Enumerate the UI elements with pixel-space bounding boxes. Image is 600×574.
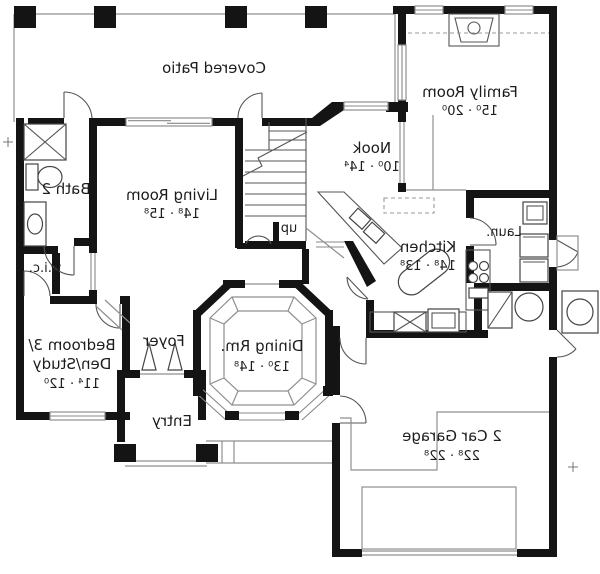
label-laundry: Laun.	[486, 225, 522, 240]
dim-nook: 10⁰ · 14⁴	[344, 160, 400, 175]
floor-plan-drawing: Covered Patio Family Room 15⁰ · 20⁰ Nook…	[0, 0, 600, 574]
utility-sink	[523, 202, 547, 224]
dim-kitchen: 14⁸ · 13⁸	[400, 259, 456, 274]
range-cooktop	[469, 262, 489, 299]
floor-plan: Covered Patio Family Room 15⁰ · 20⁰ Nook…	[0, 0, 600, 574]
label-bath-2: Bath 2	[41, 180, 90, 198]
dim-bedroom-3: 11⁴ · 12⁰	[44, 377, 100, 392]
fireplace	[449, 14, 499, 46]
dim-garage: 22⁸ · 22⁸	[424, 449, 480, 464]
family-room-extras	[406, 14, 549, 190]
label-bedroom-3-line1: Bedroom 3/	[27, 336, 115, 354]
garage-side-door	[557, 330, 576, 357]
refrigerator	[428, 309, 459, 332]
entry-porch	[114, 441, 332, 466]
label-garage: 2 Car Garage	[402, 427, 502, 445]
ac-pad	[562, 291, 598, 333]
furnace	[488, 292, 512, 328]
stairhall-patio-door	[238, 93, 262, 118]
label-living-room: Living Room	[126, 186, 218, 204]
label-wic: w.i.c.	[29, 261, 62, 276]
water-heater	[515, 293, 543, 321]
dim-family-room: 15⁰ · 20⁰	[442, 104, 498, 119]
label-kitchen: Kitchen	[400, 238, 456, 256]
label-stairs-up: up	[281, 221, 298, 236]
dim-living-room: 14⁸ · 15⁸	[144, 207, 200, 222]
shower	[24, 124, 66, 160]
label-entry: Entry	[152, 412, 192, 430]
washer-dryer	[520, 234, 548, 282]
sliding-door	[126, 118, 212, 126]
stairs	[240, 118, 344, 258]
cased-opening-hall	[89, 253, 97, 290]
patio-pillars	[14, 6, 327, 28]
pantry	[394, 312, 426, 332]
label-nook: Nook	[353, 139, 392, 157]
garage-hall-door	[340, 338, 366, 364]
label-dining-room: Dining Rm.	[221, 337, 304, 355]
label-foyer: Foyer	[142, 332, 184, 350]
label-family-room: Family Room	[422, 83, 518, 101]
vanity-sink	[24, 202, 46, 246]
doors	[24, 92, 578, 423]
laundry-fixtures	[520, 202, 548, 282]
label-bedroom-3-line2: Den/Study	[33, 355, 112, 373]
entry-pillars	[114, 444, 218, 462]
counter-south	[370, 309, 466, 332]
dim-dining-room: 13⁰ · 14⁸	[234, 360, 290, 375]
garage-door	[362, 487, 517, 555]
laundry-exterior-door	[557, 236, 578, 270]
label-covered-patio: Covered Patio	[162, 59, 266, 77]
garage-walk-door	[340, 396, 366, 423]
bath-patio-door	[64, 92, 92, 118]
